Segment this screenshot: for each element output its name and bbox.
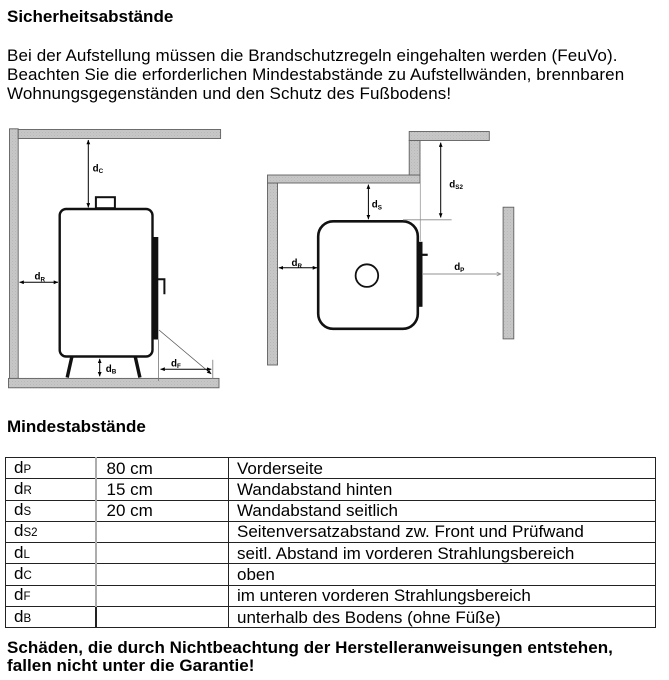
svg-text:dS: dS — [372, 200, 382, 212]
svg-text:dP: dP — [454, 262, 464, 274]
svg-text:dC: dC — [93, 163, 104, 175]
svg-text:dB: dB — [106, 364, 117, 376]
svg-text:dR: dR — [292, 258, 303, 270]
svg-text:dR: dR — [35, 272, 46, 284]
svg-text:dS2: dS2 — [449, 179, 463, 191]
svg-text:dF: dF — [171, 358, 181, 370]
